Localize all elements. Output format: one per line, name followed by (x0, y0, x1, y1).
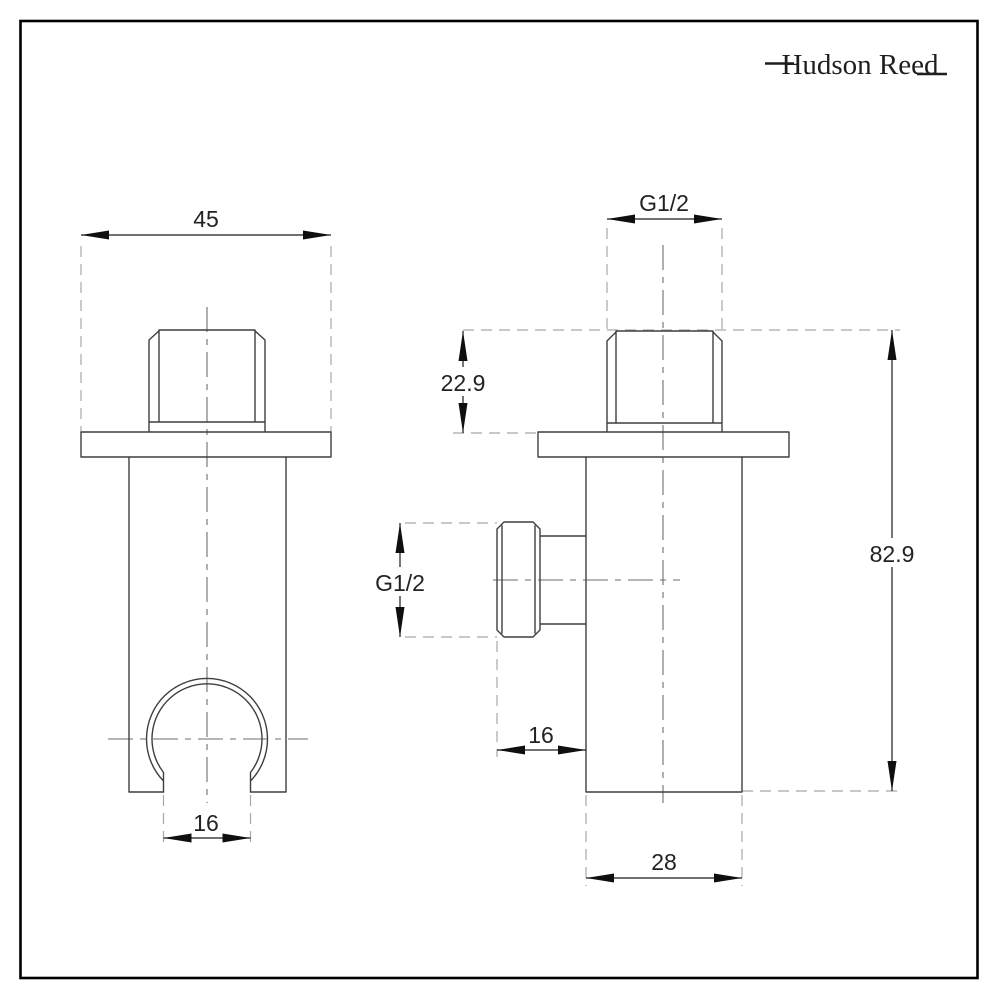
arrow-right (223, 834, 251, 843)
arrow-left (586, 874, 614, 883)
side-extension-lines (405, 228, 900, 886)
dim-label: 45 (193, 206, 219, 232)
dim-label: 82.9 (870, 541, 915, 567)
arrow-up (396, 523, 405, 553)
dim-label: 22.9 (441, 370, 486, 396)
arrow-up (459, 331, 468, 361)
dim-side-outlet-offset: 16 (497, 722, 586, 755)
dim-label: G1/2 (375, 570, 425, 596)
dim-label: 16 (528, 722, 554, 748)
arrow-left (607, 215, 635, 224)
dim-front-opening-width: 16 (164, 810, 251, 843)
arrow-down (459, 403, 468, 433)
front-extension-lines (81, 246, 331, 848)
side-view: G1/2 22.9 82.9 G1/2 (366, 190, 925, 886)
arrow-left (497, 746, 525, 755)
arrow-right (714, 874, 742, 883)
dim-front-overall-width: 45 (81, 206, 331, 240)
arrow-up (888, 330, 897, 360)
drawing-sheet: Hudson Reed 45 16 (0, 0, 1000, 1000)
arrow-right (558, 746, 586, 755)
dim-side-top-thread: G1/2 (607, 190, 722, 224)
side-body (586, 457, 742, 792)
arrow-down (888, 761, 897, 791)
dim-label: 16 (193, 810, 219, 836)
arrow-left (164, 834, 192, 843)
front-wall-plate (81, 432, 331, 457)
dim-label: G1/2 (639, 190, 689, 216)
technical-drawing: Hudson Reed 45 16 (0, 0, 1000, 1000)
dim-side-overall-height: 82.9 (860, 330, 925, 791)
arrow-left (81, 231, 109, 240)
dim-side-outlet-thread: G1/2 (366, 523, 435, 637)
dim-side-body-depth: 28 (586, 849, 742, 883)
arrow-right (303, 231, 331, 240)
brand-logo: Hudson Reed (765, 49, 947, 81)
arrow-down (396, 607, 405, 637)
front-view: 45 16 (81, 206, 331, 848)
side-thread-nut (607, 331, 722, 432)
brand-name: Hudson Reed (781, 49, 939, 81)
dim-side-thread-length: 22.9 (432, 331, 494, 433)
dim-label: 28 (651, 849, 677, 875)
arrow-right (694, 215, 722, 224)
